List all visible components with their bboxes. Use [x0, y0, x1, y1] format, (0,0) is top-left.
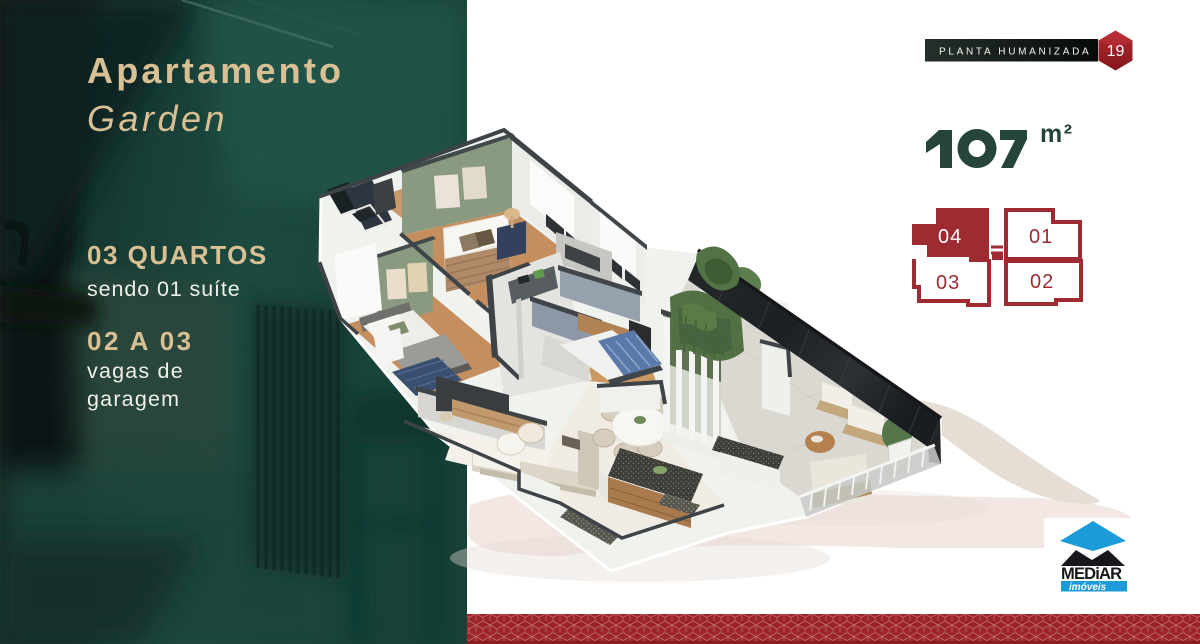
svg-text:01: 01 — [1029, 226, 1053, 248]
svg-text:MEDiAR: MEDiAR — [1061, 565, 1122, 583]
svg-text:PLANTA HUMANIZADA: PLANTA HUMANIZADA — [939, 47, 1091, 58]
svg-text:02: 02 — [1030, 271, 1054, 293]
svg-text:m²: m² — [1040, 120, 1074, 148]
svg-text:imóveis: imóveis — [1069, 582, 1107, 593]
svg-text:04: 04 — [938, 226, 962, 248]
svg-text:03: 03 — [936, 272, 960, 294]
svg-text:19: 19 — [1107, 43, 1125, 60]
